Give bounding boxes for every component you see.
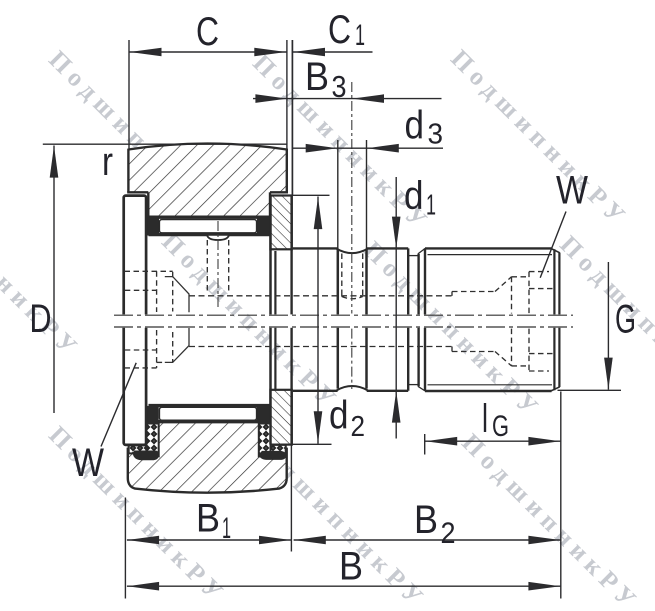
svg-text:C: C xyxy=(196,10,219,54)
svg-text:B: B xyxy=(196,497,220,541)
svg-text:l: l xyxy=(482,397,488,441)
svg-text:B: B xyxy=(339,545,363,589)
svg-text:d: d xyxy=(404,174,424,218)
svg-text:1: 1 xyxy=(355,19,365,52)
svg-text:2: 2 xyxy=(441,517,456,550)
svg-text:B: B xyxy=(414,498,438,542)
svg-text:C: C xyxy=(328,8,351,52)
svg-text:3: 3 xyxy=(332,69,347,104)
svg-text:2: 2 xyxy=(351,411,366,443)
svg-text:B: B xyxy=(305,55,329,99)
svg-text:d: d xyxy=(329,394,349,438)
svg-text:G: G xyxy=(615,298,636,342)
svg-text:d: d xyxy=(405,104,425,148)
svg-text:1: 1 xyxy=(426,190,436,222)
svg-text:W: W xyxy=(72,441,104,485)
svg-text:D: D xyxy=(30,297,52,341)
svg-text:1: 1 xyxy=(222,512,231,545)
svg-text:3: 3 xyxy=(428,119,444,151)
svg-text:r: r xyxy=(102,140,113,184)
svg-text:W: W xyxy=(556,169,588,213)
svg-text:G: G xyxy=(492,410,509,443)
